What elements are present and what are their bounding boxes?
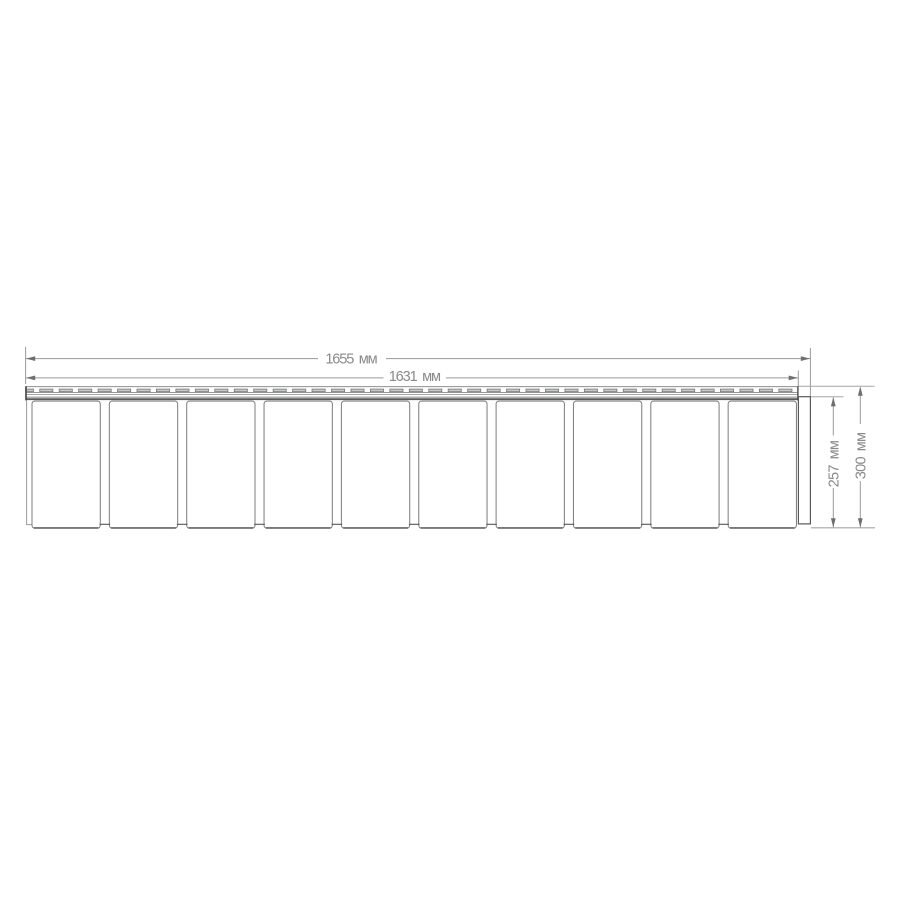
svg-text:1631 мм: 1631 мм <box>389 369 441 385</box>
svg-text:1655 мм: 1655 мм <box>325 351 377 367</box>
svg-text:257 мм: 257 мм <box>826 440 842 487</box>
svg-text:300 мм: 300 мм <box>854 432 870 479</box>
